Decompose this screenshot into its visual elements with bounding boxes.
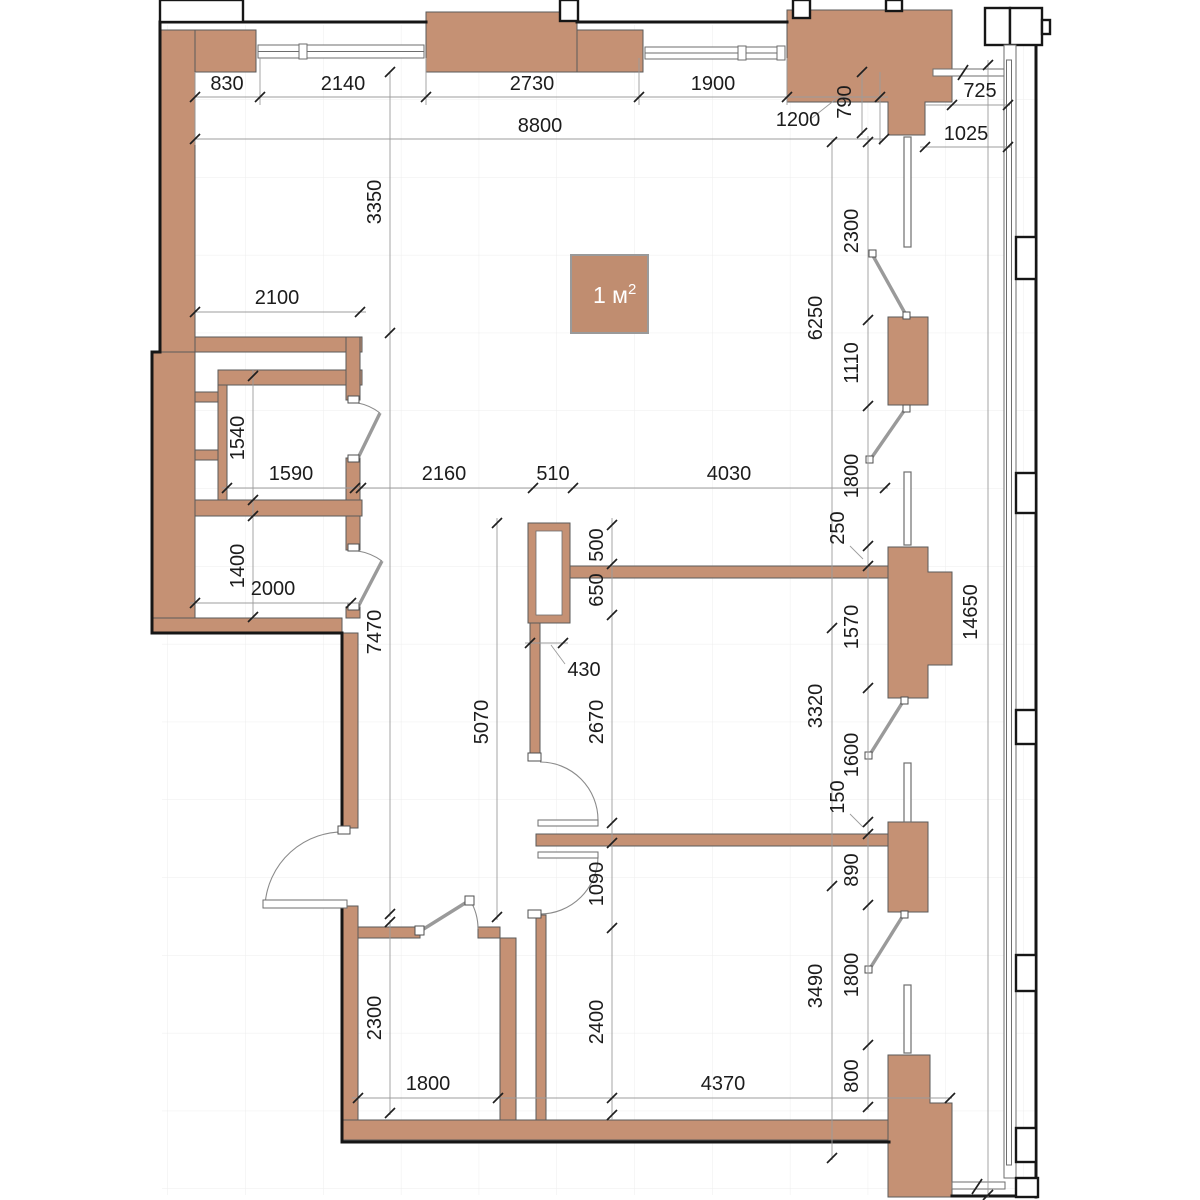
dim-label: 430: [567, 659, 600, 681]
facade-mullion: [1016, 1128, 1036, 1162]
window-mullion: [738, 46, 746, 60]
parapet-pillar: [793, 0, 810, 18]
dim-label: 1900: [691, 73, 736, 95]
dim-label: 510: [536, 463, 569, 485]
dim-label: 830: [210, 73, 243, 95]
dim-label: 500: [586, 528, 608, 561]
dim-label: 890: [841, 853, 863, 886]
window-pane: [904, 137, 911, 247]
dim-label: 2160: [422, 463, 467, 485]
dim-label: 1090: [586, 862, 608, 907]
dim-label: 1200: [776, 109, 821, 131]
dim-label: 250: [827, 511, 849, 544]
dim-label: 800: [841, 1059, 863, 1092]
dim-label: 2300: [364, 996, 386, 1041]
facade-mullion: [1016, 473, 1036, 513]
dim-label: 2140: [321, 73, 366, 95]
corner-pillar: [1042, 20, 1050, 34]
dim-label: 2300: [841, 209, 863, 254]
dim-label: 1540: [227, 416, 249, 461]
parapet-pillar: [886, 0, 902, 11]
facade-mullion: [1016, 710, 1036, 744]
dim-label: 790: [834, 85, 856, 118]
window-mullion: [299, 44, 307, 59]
dim-label: 2730: [510, 73, 555, 95]
dim-label: 4030: [707, 463, 752, 485]
facade-mullion: [1016, 1178, 1038, 1197]
corner-pillar: [1010, 8, 1042, 45]
facade-glass-line: [1007, 60, 1012, 1165]
dim-label: 2400: [586, 1000, 608, 1045]
dim-label: 1800: [841, 953, 863, 998]
dim-label: 1600: [841, 733, 863, 778]
floor-plan-page: 830 2140 2730 1900 1200 8800 725 1025 21…: [0, 0, 1200, 1200]
dim-label: 1570: [841, 605, 863, 650]
dim-label: 2100: [255, 287, 300, 309]
dim-label: 4370: [701, 1073, 746, 1095]
dim-label: 1110: [841, 342, 863, 384]
dim-label: 5070: [471, 700, 493, 745]
window-pane: [904, 985, 911, 1053]
dim-label: 150: [827, 780, 849, 813]
corner-pillar: [985, 8, 1010, 45]
facade-mullion: [1016, 955, 1036, 991]
dim-label: 650: [586, 573, 608, 606]
terrace-glazing-top: [933, 69, 1004, 76]
dim-label: 2670: [586, 700, 608, 745]
dim-label: 3490: [805, 964, 827, 1009]
parapet-pillar: [560, 0, 578, 21]
dim-label: 14650: [960, 584, 982, 640]
parapet-pillar: [160, 0, 243, 22]
window-mullion: [777, 46, 785, 60]
dim-label: 3350: [364, 180, 386, 225]
dim-label: 1590: [269, 463, 314, 485]
dim-label: 6250: [805, 296, 827, 341]
facade-mullion: [1016, 237, 1036, 279]
dim-label: 725: [963, 80, 996, 102]
dim-label: 1025: [944, 123, 989, 145]
dim-label: 8800: [518, 115, 563, 137]
dim-label: 1800: [406, 1073, 451, 1095]
dim-label: 3320: [805, 684, 827, 729]
window-pane: [904, 472, 911, 545]
dim-label: 1800: [841, 454, 863, 499]
dim-label: 7470: [364, 610, 386, 655]
legend-area-marker: 1 м2: [571, 255, 648, 333]
dim-label: 2000: [251, 578, 296, 600]
window-pane: [904, 763, 911, 822]
dim-label: 1400: [227, 544, 249, 589]
floor-plan-canvas: 830 2140 2730 1900 1200 8800 725 1025 21…: [0, 0, 1200, 1200]
